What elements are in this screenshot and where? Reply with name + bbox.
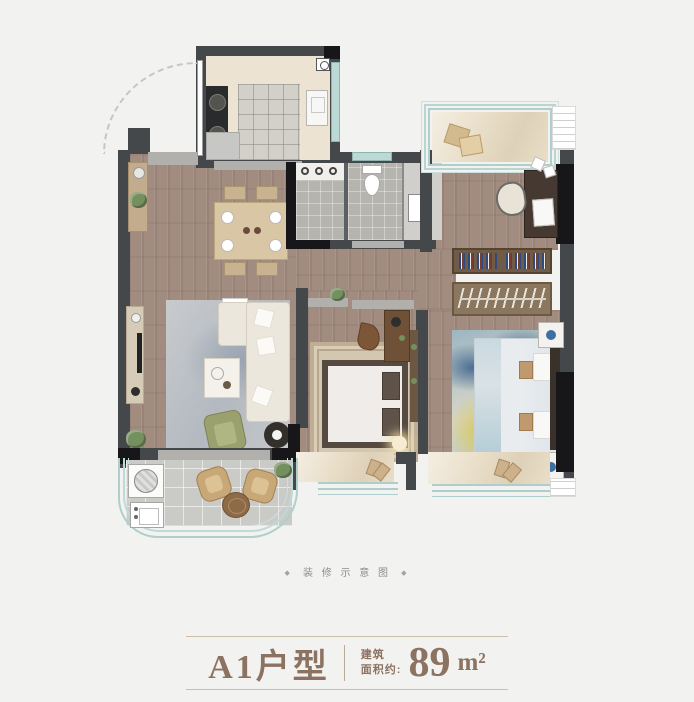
tv-console [126,306,144,404]
master-bay-sill [428,452,550,484]
plate-icon [221,211,234,224]
washer-drum-icon [134,469,158,493]
sofa-pillow [256,336,277,357]
bathroom-door-threshold [352,241,404,248]
master-door-threshold [352,300,414,309]
decor-icon [223,381,231,389]
bay-divider-wall-2 [406,452,416,490]
living-plant [126,430,146,448]
title-vertical-divider [344,645,345,681]
plate-icon [269,211,282,224]
table-ring-icon [228,498,246,514]
dining-chair [256,186,278,200]
floor-plan-page: ◆装 修 示 意 图◆ A1户型 建筑 面积约: 89 m² [0,0,694,702]
bed-pillow [382,372,400,400]
hall-plant [330,288,345,301]
entry-plant [130,192,147,208]
master-bay-glass [432,484,550,497]
master-right-wall-black [556,372,574,472]
vase-icon [546,330,556,340]
floor-lamp [392,436,407,451]
dish-icon [254,227,261,234]
area-label-line2: 面积约: [361,664,402,676]
bathroom-vanity-counter [296,163,344,181]
master-bed [474,338,558,454]
sink-basin [311,97,325,113]
balcony-plant [274,462,292,478]
balcony-table [222,492,250,518]
basin-icon [315,167,323,175]
table-top-icon [272,430,282,440]
books-icon [506,253,546,269]
plan-caption: ◆装 修 示 意 图◆ [0,564,694,579]
sink-basin [139,508,159,525]
faucet-icon [134,515,138,519]
toilet-tank [362,165,382,174]
bed-pillow [382,408,400,436]
dressing-table [384,310,410,362]
master-side-sill [550,478,576,497]
tray-icon [211,367,224,380]
coffee-table [204,358,240,398]
kitchen-hood-symbol [316,58,330,71]
decor-icon [131,313,141,323]
wall-shelf [410,330,418,422]
bathroom-bottom-wall-black [286,240,330,249]
living-bedroom2-wall [296,288,308,428]
lounge-chair-seat [213,421,237,447]
basin-icon [301,167,309,175]
area-value: 89 [408,642,450,684]
tv-icon [137,333,142,373]
bedroom2-bay-glass [318,482,398,495]
speaker-icon [131,387,140,396]
bedroom2-bed [322,360,408,448]
plant-icon [411,378,417,384]
caption-text: 装 修 示 意 图 [303,568,391,579]
bathroom-left-wall [286,162,296,242]
mirror-icon [391,317,401,327]
study-side-sill [552,106,576,150]
wardrobe-rod [460,298,546,300]
nightstand [538,322,564,348]
bay-cushion [459,134,484,157]
plant-icon [399,335,405,341]
dining-chair [256,262,278,276]
basin-icon [329,167,337,175]
entry-door-swing-arc [103,62,197,154]
balcony-sink [130,502,164,528]
faucet-icon [134,507,138,511]
dining-table [214,202,288,260]
console-mirror-icon [133,167,145,179]
hood-circle-icon [320,61,329,70]
accent-cushion [519,361,533,379]
bed-throw [475,339,501,453]
area-label: 建筑 面积约: [361,648,402,678]
title-divider-bottom [186,689,508,690]
dining-chair [224,262,246,276]
bedroom2-bay-sill [296,452,394,482]
desk-papers [532,198,555,226]
kitchen-counter [206,132,240,160]
chair-seat [250,476,270,496]
dining-chair [224,186,246,200]
accent-cushion [519,413,533,431]
caption-diamond-right-icon: ◆ [391,570,419,577]
area-label-line1: 建筑 [361,649,385,661]
kitchen-tile-area [238,84,300,160]
wardrobe [452,282,552,316]
plate-icon [221,239,234,252]
kitchen-sink [306,90,328,126]
plate-icon [269,239,282,252]
washing-machine [128,464,164,498]
sofa [246,302,290,422]
kitchen-window [331,62,340,142]
title-block: A1户型 建筑 面积约: 89 m² [186,636,508,690]
sofa-pillow [253,307,275,329]
bathroom-window [352,152,392,161]
plant-icon [411,344,417,350]
stove-burner-icon [209,94,226,111]
entry-door-leaf [197,60,203,156]
study-right-wall-black [556,164,574,244]
sofa-pillow [250,384,273,407]
unit-name: A1户型 [208,639,330,688]
books-icon [459,253,497,269]
study-desk [524,170,558,238]
shower-glass-panel [402,163,404,240]
bookshelf [452,248,552,274]
side-round-table [264,422,290,448]
chair-seat [204,474,224,494]
dish-icon [243,227,250,234]
area-unit: m² [457,649,485,677]
caption-diamond-left-icon: ◆ [275,570,303,577]
